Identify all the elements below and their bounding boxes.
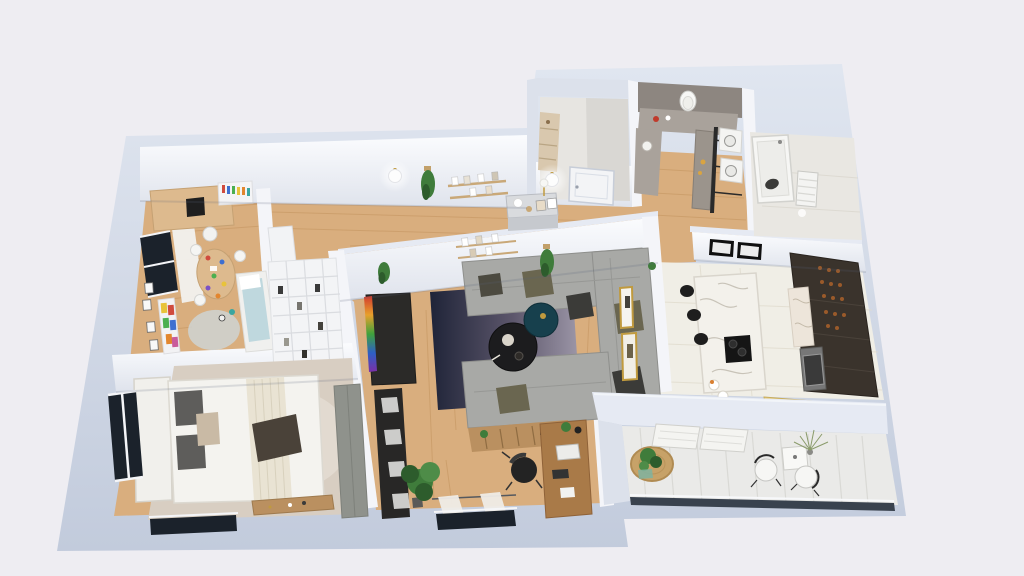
balcony (592, 392, 898, 511)
island-cooktop (724, 335, 752, 363)
kids-monitor (186, 197, 205, 217)
kids-desk-chair (203, 227, 217, 241)
floor-plan-stage (0, 0, 1024, 576)
desk-books (552, 469, 569, 479)
toy-panda (219, 315, 225, 321)
washer-drum-2 (726, 166, 737, 177)
coffee-table-bowl (515, 352, 523, 360)
entry-door-handle (575, 185, 578, 188)
entry-door (569, 167, 614, 205)
cup-white (666, 116, 671, 121)
bed-pillow-beige (196, 412, 220, 446)
kitchen-island (694, 273, 766, 393)
bench-plant (480, 430, 488, 438)
burner-2 (738, 348, 746, 356)
kids-wardrobe (268, 226, 296, 264)
deco-yellow-1 (701, 160, 706, 165)
desk-plant (561, 422, 571, 432)
study-nook (268, 258, 344, 370)
desk-lamp (575, 427, 582, 434)
island-fruit (710, 380, 714, 384)
bench-deco-2 (302, 501, 306, 505)
radiator-glow (798, 209, 806, 217)
bar-stool-3 (694, 333, 708, 345)
kid-chair-1 (191, 245, 202, 256)
bar-stool-2 (687, 309, 701, 321)
burner-1 (729, 340, 737, 348)
sofa-pillow-5 (496, 384, 530, 414)
closet-deco (546, 120, 550, 124)
main-bathroom (750, 132, 862, 240)
deco-yellow-2 (698, 171, 702, 175)
desk-laptop (556, 444, 580, 460)
ceiling-lamp-1 (389, 170, 402, 183)
coffee-table-plate (502, 334, 514, 346)
teal-table-deco (540, 313, 546, 319)
toilet-seat (683, 97, 693, 110)
washer-drum-1 (725, 136, 736, 147)
desk (540, 420, 592, 518)
bath-faucet (778, 140, 782, 144)
sofa-bottom-arm (462, 352, 614, 428)
laundry-vanity-west (634, 128, 662, 196)
oven-window (803, 354, 824, 386)
floor-plan-render (0, 0, 1024, 576)
coffee-table-teal (524, 303, 558, 337)
bench-deco-3 (269, 506, 272, 509)
kid-chair-3 (195, 295, 206, 306)
bench-deco-1 (288, 503, 292, 507)
office-chair (511, 457, 537, 483)
kid-chair-2 (235, 251, 246, 262)
desk-papers (560, 487, 575, 498)
entry-closet-north-band (538, 78, 628, 98)
sofa-pillow-3 (566, 292, 594, 320)
kettle-red (653, 116, 659, 122)
sink-bowl (642, 141, 652, 151)
bar-stool-1 (680, 285, 694, 297)
toy-bin (229, 309, 235, 315)
